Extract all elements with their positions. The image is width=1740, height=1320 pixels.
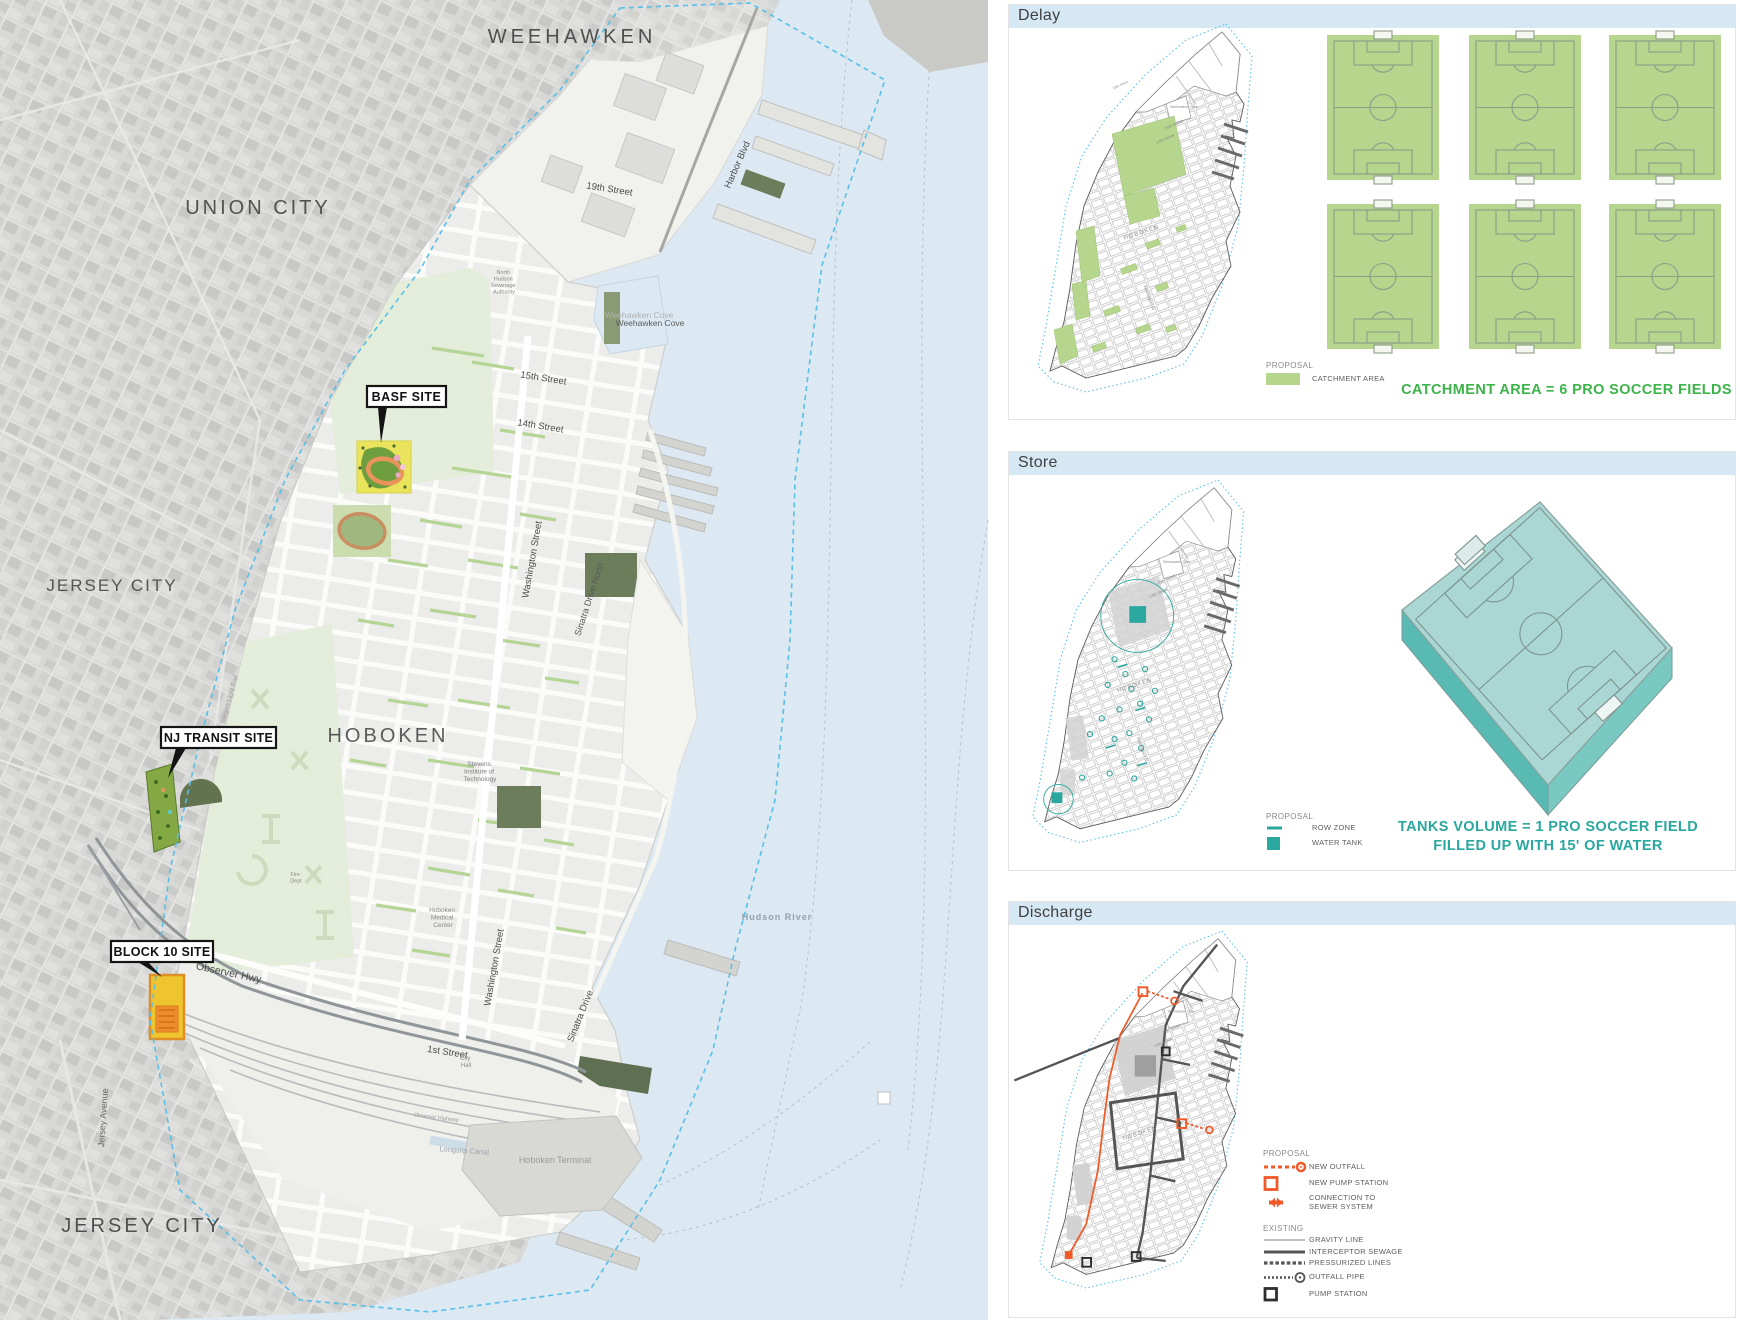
label-nhsa-3: Sewerage (491, 283, 516, 289)
discharge-label-gravity: GRAVITY LINE (1309, 1236, 1364, 1245)
label-washington-street-south: Washington Street (482, 928, 506, 1007)
hoboken-land (172, 185, 697, 1272)
green-zone-southwest (182, 624, 354, 977)
union-city-roads (0, 0, 300, 830)
delay-legend-label: CATCHMENT AREA (1312, 375, 1385, 384)
label-jersey-avenue: Jersey Avenue (96, 1088, 110, 1147)
label-fire-2: Dept (290, 879, 302, 885)
light-rail (88, 845, 140, 930)
discharge-legend-existing: EXISTING GRAVITY LINE INTERCEPTOR SEWAGE… (1263, 1224, 1403, 1305)
label-hudson-river: Hudson River (742, 912, 813, 922)
weehawken-hill-aerial (560, 0, 780, 62)
pier-a-park (576, 1056, 652, 1094)
plan-ghost-marks (238, 690, 334, 938)
harbor-area (541, 8, 886, 254)
label-medical-3: Center (433, 922, 453, 929)
label-medical-1: Hoboken (429, 907, 455, 914)
label-stevens-3: Technology (464, 776, 498, 783)
label-weehawken-cove-ghost: Weehawken Cove (605, 310, 674, 320)
new-outfall-icon (1263, 1161, 1309, 1173)
catchment-area-swatch-icon (1266, 373, 1312, 385)
connection-sewer-icon (1263, 1196, 1309, 1209)
label-union-city: UNION CITY (185, 197, 331, 219)
discharge-label-new-pump: NEW PUMP STATION (1309, 1179, 1388, 1188)
label-sinatra-drive: Sinatra Drive (565, 989, 596, 1044)
label-jersey-city-upper: JERSEY CITY (46, 576, 177, 595)
amphitheater-park (180, 779, 222, 808)
label-weehawken-cove: Weehawken Cove (616, 318, 685, 328)
label-city-hall: City Hall (460, 1056, 472, 1069)
label-observer-hwy: Observer Hwy (195, 960, 263, 986)
row-zone-icon (1266, 824, 1312, 832)
palisade (172, 282, 415, 1002)
gravity-line-icon (1263, 1236, 1309, 1244)
panel-store: Store (1008, 451, 1736, 871)
weehawken-cove-water (594, 276, 668, 354)
channel-lines (620, 0, 988, 1290)
label-nhsa-1: North (497, 270, 510, 276)
site-callouts: BASF SITE NJ TRANSIT SITE BLOCK 10 SITE (111, 386, 446, 977)
panel-discharge-title: Discharge (1009, 902, 1735, 925)
discharge-label-new-outfall: NEW OUTFALL (1309, 1163, 1365, 1172)
new-pump-station-icon (1263, 1176, 1309, 1191)
discharge-label-connection-line2: SEWER SYSTEM (1309, 1203, 1376, 1212)
label-stevens: Stevens Institute of Technology (464, 761, 498, 783)
label-city-hall-2: Hall (461, 1063, 471, 1069)
south-piers (556, 940, 740, 1270)
label-medical-center: Hoboken Medical Center (429, 907, 457, 929)
jersey-city-aerial (0, 1005, 545, 1320)
block-10-site (150, 975, 184, 1039)
pressurized-lines-icon (1263, 1259, 1309, 1267)
observer-hwy-road (215, 955, 565, 1046)
discharge-proposal-title: PROPOSAL (1263, 1149, 1388, 1158)
stevens-campus (622, 560, 697, 800)
label-hoboken-terminal: Hoboken Terminal (519, 1155, 591, 1165)
discharge-label-pump: PUMP STATION (1309, 1290, 1368, 1299)
weehawken-land (470, 0, 770, 282)
discharge-label-pressurized: PRESSURIZED LINES (1309, 1259, 1391, 1268)
store-headline-line2: FILLED UP WITH 15' OF WATER (1370, 837, 1726, 856)
hoboken-terminal-building (462, 1116, 642, 1216)
label-weehawken: WEEHAWKEN (488, 26, 657, 48)
label-medical-2: Medical (431, 915, 454, 922)
store-headline: TANKS VOLUME = 1 PRO SOCCER FIELD FILLED… (1370, 818, 1726, 856)
harbor-blvd-road (660, 8, 757, 252)
label-nhsa: North Hudson Sewerage Authority (491, 270, 517, 296)
store-legend: PROPOSAL ROW ZONE WATER TANK (1266, 812, 1363, 854)
label-fire-dept: Fire Dept (290, 872, 302, 885)
water-tank-icon (1266, 836, 1312, 851)
nj-transit-site (146, 764, 180, 852)
pier-park-ne (741, 169, 786, 198)
label-stevens-1: Stevens (467, 761, 491, 768)
label-city-hall-1: City (460, 1056, 470, 1062)
washington-street-road (462, 336, 528, 1040)
label-19th-street: 19th Street (586, 180, 634, 198)
label-observer-highway-small: Observer Highway (413, 1112, 459, 1123)
page: { "map": { "regions": { "weehawken": "WE… (0, 0, 1740, 1320)
panel-store-title: Store (1009, 452, 1735, 475)
label-longslip-canal: Longslip Canal (439, 1144, 489, 1156)
label-bergen-light-rail: Bergen Light Rail (219, 674, 240, 724)
panel-delay-title: Delay (1009, 5, 1735, 28)
discharge-label-connection: CONNECTION TO SEWER SYSTEM (1309, 1194, 1376, 1211)
store-headline-line1: TANKS VOLUME = 1 PRO SOCCER FIELD (1370, 818, 1726, 837)
store-legend-title: PROPOSAL (1266, 812, 1363, 821)
label-harbor-blvd: Harbor Blvd (722, 140, 752, 190)
discharge-label-interceptor: INTERCEPTOR SEWAGE (1309, 1248, 1403, 1257)
union-city-aerial (0, 0, 640, 1058)
label-stevens-2: Institute of (464, 769, 494, 776)
longslip-canal-water (430, 1140, 578, 1166)
harbor-piers (713, 100, 886, 254)
store-legend-label-rowzone: ROW ZONE (1312, 824, 1356, 833)
label-fire-1: Fire (290, 872, 299, 878)
green-zone-north (330, 268, 494, 494)
label-jersey-city-lower: JERSEY CITY (61, 1215, 223, 1237)
rail-yard (88, 838, 618, 1232)
far-shore-aerial (868, 0, 988, 72)
label-hoboken: HOBOKEN (327, 725, 448, 747)
panel-delay: Delay (1008, 4, 1736, 420)
rail-viaduct (88, 838, 586, 1082)
basf-site (357, 441, 411, 493)
callout-nj-transit-site: NJ TRANSIT SITE (164, 731, 273, 745)
callout-block-10-site: BLOCK 10 SITE (114, 945, 211, 959)
interceptor-sewage-icon (1263, 1248, 1309, 1256)
east-piers (633, 432, 718, 532)
hudson-river-water (0, 0, 988, 1320)
main-map: WEEHAWKEN UNION CITY JERSEY CITY HOBOKEN… (0, 0, 988, 1320)
store-legend-label-tank: WATER TANK (1312, 839, 1363, 848)
label-sinatra-drive-north: Sinatra Drive North (573, 561, 606, 637)
study-area-boundary (150, 3, 885, 1312)
discharge-existing-title: EXISTING (1263, 1224, 1403, 1233)
label-nhsa-4: Authority (493, 290, 515, 296)
callout-basf-site: BASF SITE (372, 390, 442, 404)
green-street-strips (350, 348, 586, 956)
label-15th-street: 15th Street (520, 369, 568, 387)
jersey-city-roads (0, 1040, 420, 1320)
label-washington-street-north: Washington Street (520, 520, 544, 599)
delay-headline: CATCHMENT AREA = 6 PRO SOCCER FIELDS (1380, 382, 1732, 398)
label-nhsa-2: Hudson (494, 277, 513, 283)
discharge-legend-proposal: PROPOSAL NEW OUTFALL NEW PUMP STATION CO… (1263, 1149, 1388, 1214)
delay-legend-title: PROPOSAL (1266, 361, 1385, 370)
pump-station-icon (1263, 1287, 1309, 1302)
discharge-label-outfall-pipe: OUTFALL PIPE (1309, 1273, 1365, 1282)
delay-legend: PROPOSAL CATCHMENT AREA (1266, 361, 1385, 388)
label-14th-street: 14th Street (517, 417, 565, 435)
outfall-pipe-icon (1263, 1271, 1309, 1284)
label-1st-street: 1st Street (426, 1044, 468, 1061)
sinatra-drive-road (594, 430, 685, 998)
parks (180, 292, 652, 1094)
map-marker-box (878, 1092, 890, 1104)
